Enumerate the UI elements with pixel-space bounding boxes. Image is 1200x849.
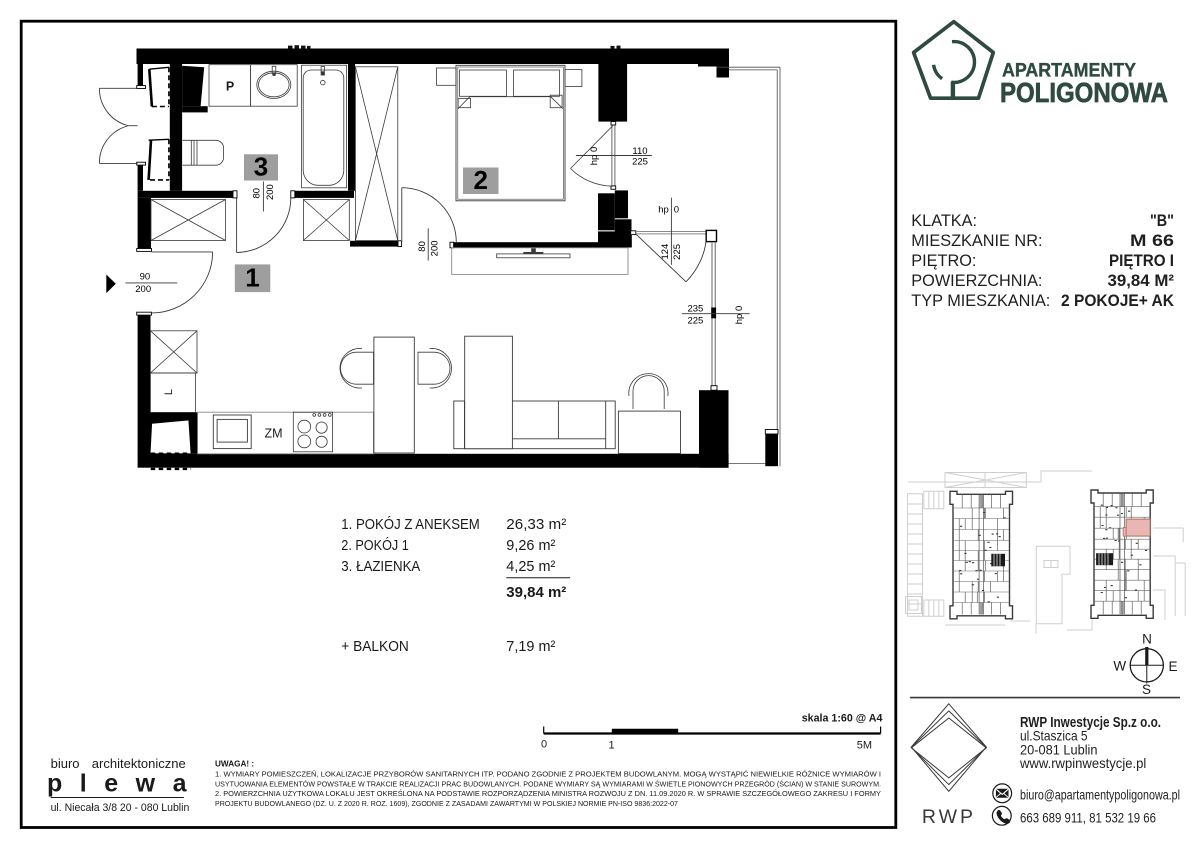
svg-text:200: 200: [430, 240, 441, 256]
svg-text:UWAGA! :: UWAGA! :: [215, 760, 254, 769]
svg-text:225: 225: [687, 316, 703, 327]
svg-text:"B": "B": [1150, 212, 1174, 230]
svg-text:www.rwpinwestycje.pl: www.rwpinwestycje.pl: [1019, 755, 1146, 771]
svg-text:E: E: [1168, 659, 1177, 674]
svg-text:PIĘTRO:: PIĘTRO:: [911, 252, 976, 270]
svg-text:225: 225: [672, 244, 683, 260]
svg-text:PIĘTRO I: PIĘTRO I: [1109, 252, 1174, 270]
svg-text:39,84 m²: 39,84 m²: [506, 584, 566, 601]
svg-text:1: 1: [245, 263, 259, 293]
svg-text:200: 200: [265, 184, 276, 200]
svg-text:skala 1:60 @ A4: skala 1:60 @ A4: [802, 713, 884, 725]
svg-text:ul. Niecała 3/8 20 - 080 Lubl: ul. Niecała 3/8 20 - 080 Lublin: [51, 802, 190, 814]
svg-text:9,26 m²: 9,26 m²: [506, 537, 555, 554]
svg-text:235: 235: [687, 304, 703, 315]
svg-text:0: 0: [674, 204, 679, 215]
svg-text:39,84 M²: 39,84 M²: [1108, 272, 1175, 290]
svg-text:POWIERZCHNIA:: POWIERZCHNIA:: [911, 272, 1042, 290]
svg-text:hp 0: hp 0: [589, 147, 600, 166]
svg-text:200: 200: [135, 284, 151, 295]
svg-text:POLIGONOWA: POLIGONOWA: [1000, 77, 1168, 108]
svg-text:80: 80: [417, 241, 428, 252]
svg-text:80: 80: [252, 188, 263, 199]
svg-text:hp 0: hp 0: [734, 306, 745, 325]
svg-text:+ BALKON: + BALKON: [341, 638, 409, 655]
svg-text:2. POWIERZCHNIA UŻYTKOWA LO: 2. POWIERZCHNIA UŻYTKOWA LOKALU JEST OKR…: [215, 789, 881, 798]
svg-text:0: 0: [541, 739, 547, 751]
svg-text:W: W: [1113, 659, 1126, 674]
svg-text:TYP MIESZKANIA:: TYP MIESZKANIA:: [911, 292, 1050, 310]
svg-text:hp: hp: [658, 204, 669, 215]
svg-text:ZM: ZM: [264, 427, 282, 441]
svg-text:3: 3: [254, 152, 268, 182]
svg-text:7,19 m²: 7,19 m²: [506, 638, 555, 655]
svg-text:KLATKA:: KLATKA:: [911, 212, 977, 230]
svg-text:PROJEKTU BUDOWLANEGO (DZ. U. Z: PROJEKTU BUDOWLANEGO (DZ. U. Z 2020 R. R…: [215, 799, 678, 808]
svg-text:225: 225: [632, 156, 648, 167]
svg-text:2. POKÓJ 1: 2. POKÓJ 1: [341, 537, 409, 554]
svg-text:5M: 5M: [857, 740, 872, 752]
svg-text:1. WYMIARY POMIESZCZEŃ, LOK: 1. WYMIARY POMIESZCZEŃ, LOKALIZACJE PRZY…: [215, 770, 881, 779]
svg-text:2 POKOJE+ AK: 2 POKOJE+ AK: [1061, 292, 1174, 310]
svg-text:663 689 911, 81 532 19 66: 663 689 911, 81 532 19 66: [1020, 810, 1156, 826]
svg-text:MIESZKANIE NR:: MIESZKANIE NR:: [911, 232, 1042, 250]
svg-text:90: 90: [140, 272, 151, 283]
svg-text:P: P: [226, 79, 234, 93]
svg-text:M 66: M 66: [1130, 232, 1174, 250]
svg-text:3. ŁAZIENKA: 3. ŁAZIENKA: [341, 558, 420, 575]
svg-text:4,25 m²: 4,25 m²: [506, 558, 555, 575]
svg-text:biuro@apartamentypoligonowa.pl: biuro@apartamentypoligonowa.pl: [1020, 788, 1180, 803]
svg-text:RWP: RWP: [922, 806, 976, 828]
svg-text:1: 1: [608, 740, 614, 752]
svg-text:1. POKÓJ Z ANEKSEM: 1. POKÓJ Z ANEKSEM: [341, 516, 480, 533]
svg-text:2: 2: [473, 165, 487, 195]
svg-text:L: L: [163, 389, 175, 395]
svg-text:26,33 m²: 26,33 m²: [506, 516, 566, 533]
svg-text:124: 124: [660, 244, 671, 260]
svg-text:S: S: [1142, 682, 1151, 697]
svg-text:N: N: [1142, 632, 1152, 647]
svg-text:USYTUOWANIA ELEMENTÓW POWSTAŁE: USYTUOWANIA ELEMENTÓW POWSTAŁE W TRAKCIE…: [215, 779, 881, 788]
